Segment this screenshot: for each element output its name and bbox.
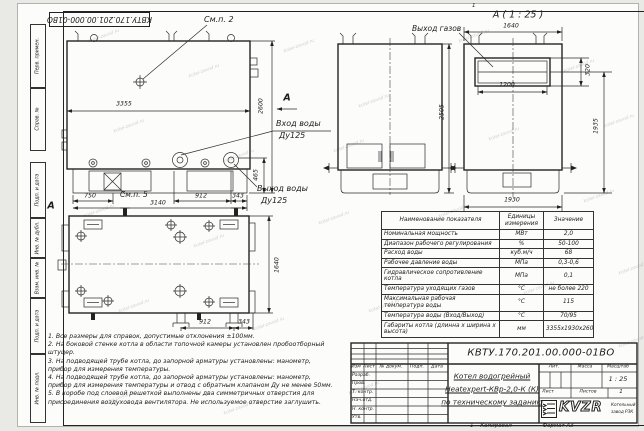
- gas-outlet-label: Выход газов: [412, 24, 461, 33]
- spec-name: Номинальная мощность: [382, 230, 500, 240]
- water-outlet-label: Выход воды: [257, 184, 308, 193]
- product-name-line2: Heatexpert-КВр-2,0-К (К): [445, 385, 539, 394]
- callout-see-item-5: См.п. 5: [120, 190, 148, 199]
- scale-label: Масштаб: [607, 365, 629, 370]
- col-list: Лист: [363, 365, 375, 370]
- copied-label: Копировал: [480, 423, 511, 429]
- spec-unit: %: [500, 239, 544, 249]
- product-name-line1: Котел водогрейный: [454, 372, 531, 381]
- col-docnum: № докум.: [380, 365, 403, 370]
- sheets-value: 1: [619, 389, 623, 395]
- spec-table: Наименование показателя Единицы измерени…: [381, 211, 594, 338]
- spec-value: 0,3-0,6: [544, 258, 594, 268]
- sign-row-nachotd: Нач.отд.: [352, 398, 373, 403]
- table-row: Температура воды (Вход/Выход)°С70/95: [382, 311, 594, 321]
- company-name-line2: завод РЗК: [611, 409, 633, 414]
- format-label: Формат А3: [542, 423, 573, 429]
- spec-name: Расход воды: [382, 249, 500, 259]
- bottom-frame-mark: 1: [470, 423, 474, 429]
- spec-header-value: Значение: [544, 212, 594, 230]
- dim-1930: 1930: [504, 197, 520, 204]
- dim-1640-plan: 1640: [274, 257, 281, 273]
- water-inlet-label: Вход воды: [276, 119, 321, 128]
- spec-name: Максимальная рабочая температура воды: [382, 294, 500, 311]
- margin-label: Справ. №: [36, 107, 41, 130]
- dim-750: 750: [84, 193, 96, 200]
- table-row: Габариты котла (длинна х ширина х высота…: [382, 321, 594, 338]
- kvzr-logo-text: KVZR: [559, 400, 603, 415]
- col-data: Дата: [431, 365, 443, 370]
- water-outlet-dn: Ду125: [261, 196, 287, 205]
- notes-block: 1. Все размеры для справок, допустимые о…: [48, 333, 335, 407]
- spec-name: Рабочее давление воды: [382, 258, 500, 268]
- spec-name: Гидравлическое сопротивление котла: [382, 268, 500, 285]
- mass-label: Масса: [578, 365, 593, 370]
- water-inlet-dn: Ду125: [279, 131, 305, 140]
- spec-name: Температура уходящих газов: [382, 285, 500, 295]
- margin-label: Инв. № дубл.: [36, 222, 41, 255]
- table-row: Рабочее давление водыМПа0,3-0,6: [382, 258, 594, 268]
- dim-2600: 2600: [258, 98, 265, 114]
- sign-row-nkontr: Н. контр.: [352, 407, 374, 412]
- note-1: 1. Все размеры для справок, допустимые о…: [48, 333, 335, 341]
- spec-value: 68: [544, 249, 594, 259]
- sign-row-tkontr: Т. контр.: [352, 390, 373, 395]
- dim-465: 465: [253, 169, 260, 181]
- title-block-doc-number: КВТУ.170.201.00.000-01ВО: [467, 348, 614, 359]
- spec-unit: МПа: [500, 258, 544, 268]
- sign-row-prov: Пров.: [352, 381, 365, 386]
- table-row: Температура уходящих газов°Сне более 220: [382, 285, 594, 295]
- margin-label: Подп. и дата: [36, 310, 41, 343]
- spec-header-row: Наименование показателя Единицы измерени…: [382, 212, 594, 230]
- sheet-label: Лист: [542, 390, 554, 395]
- spec-unit: МПа: [500, 268, 544, 285]
- spec-unit: куб.м/ч: [500, 249, 544, 259]
- frame-top-mark: 1: [472, 3, 476, 9]
- col-podp: Подп.: [410, 365, 424, 370]
- callout-see-item-2: См.п. 2: [204, 15, 234, 24]
- spec-unit: °С: [500, 285, 544, 295]
- table-row: Максимальная рабочая температура воды°С1…: [382, 294, 594, 311]
- dim-343-plan: 343: [238, 319, 250, 326]
- spec-header-unit: Единицы измерения: [500, 212, 544, 230]
- spec-value: 0,1: [544, 268, 594, 285]
- dim-912-plan: 912: [199, 319, 211, 326]
- dim-1935: 1935: [593, 118, 600, 134]
- scale-value: 1 : 25: [609, 375, 628, 383]
- spec-unit: °С: [500, 311, 544, 321]
- note-4: 4. На подводящей трубе котла, до запорно…: [48, 374, 335, 390]
- table-row: Номинальная мощностьМВт2,0: [382, 230, 594, 240]
- product-name-line3: по техническому заданию: [441, 398, 542, 407]
- table-row: Расход водыкуб.м/ч68: [382, 249, 594, 259]
- side-view-lines: [323, 33, 457, 195]
- dim-912-front: 912: [195, 193, 207, 200]
- dim-1640-detail: 1640: [503, 23, 519, 30]
- spec-unit: мм: [500, 321, 544, 338]
- spec-value: 50-100: [544, 239, 594, 249]
- margin-label: Подп. и дата: [36, 174, 41, 207]
- spec-value: 3355х1930х2600: [544, 321, 594, 338]
- lit-label: Лит.: [549, 365, 560, 370]
- dim-1200: 1200: [499, 82, 515, 89]
- dim-2505: 2505: [439, 104, 446, 120]
- section-arrow-label: А: [283, 93, 290, 104]
- margin-label: Перв. примен.: [36, 38, 41, 74]
- sign-row-razrab: Разраб.: [352, 373, 370, 378]
- spec-value: 70/95: [544, 311, 594, 321]
- detail-a-lines: [449, 27, 612, 211]
- spec-name: Габариты котла (длинна х ширина х высота…: [382, 321, 500, 338]
- spec-value: 115: [544, 294, 594, 311]
- plan-view-lines: [58, 208, 273, 331]
- sheets-label: Листов: [579, 390, 596, 395]
- col-izm: Изм: [351, 365, 360, 370]
- spec-value: не более 220: [544, 285, 594, 295]
- table-row: Диапазон рабочего регулирования%50-100: [382, 239, 594, 249]
- spec-name: Диапазон рабочего регулирования: [382, 239, 500, 249]
- margin-label: Инв. № подл.: [36, 371, 41, 404]
- company-name-line1: Котельный: [611, 402, 635, 407]
- spec-header-name: Наименование показателя: [382, 212, 500, 230]
- note-2: 2. На боковой стенке котла в области топ…: [48, 341, 335, 357]
- spec-name: Температура воды (Вход/Выход): [382, 311, 500, 321]
- note-5: 5. В коробе под слоевой решеткой выполне…: [48, 390, 335, 406]
- margin-label: Взам. инв. №: [36, 262, 41, 295]
- plan-view-direction-label: А: [47, 201, 54, 212]
- spec-unit: МВт: [500, 230, 544, 240]
- sign-row-utv: Утв.: [352, 415, 362, 420]
- kvzr-logo-icon: [541, 400, 557, 418]
- dim-3140: 3140: [150, 200, 166, 207]
- spec-unit: °С: [500, 294, 544, 311]
- detail-a-title: А ( 1 : 25 ): [493, 10, 543, 21]
- dim-3355: 3355: [116, 101, 132, 108]
- dim-343-front: 343: [232, 193, 244, 200]
- dim-320: 320: [585, 64, 592, 76]
- note-3: 3. На подводящей трубе котла, до запорно…: [48, 358, 335, 374]
- spec-value: 2,0: [544, 230, 594, 240]
- table-row: Гидравлическое сопротивление котлаМПа0,1: [382, 268, 594, 285]
